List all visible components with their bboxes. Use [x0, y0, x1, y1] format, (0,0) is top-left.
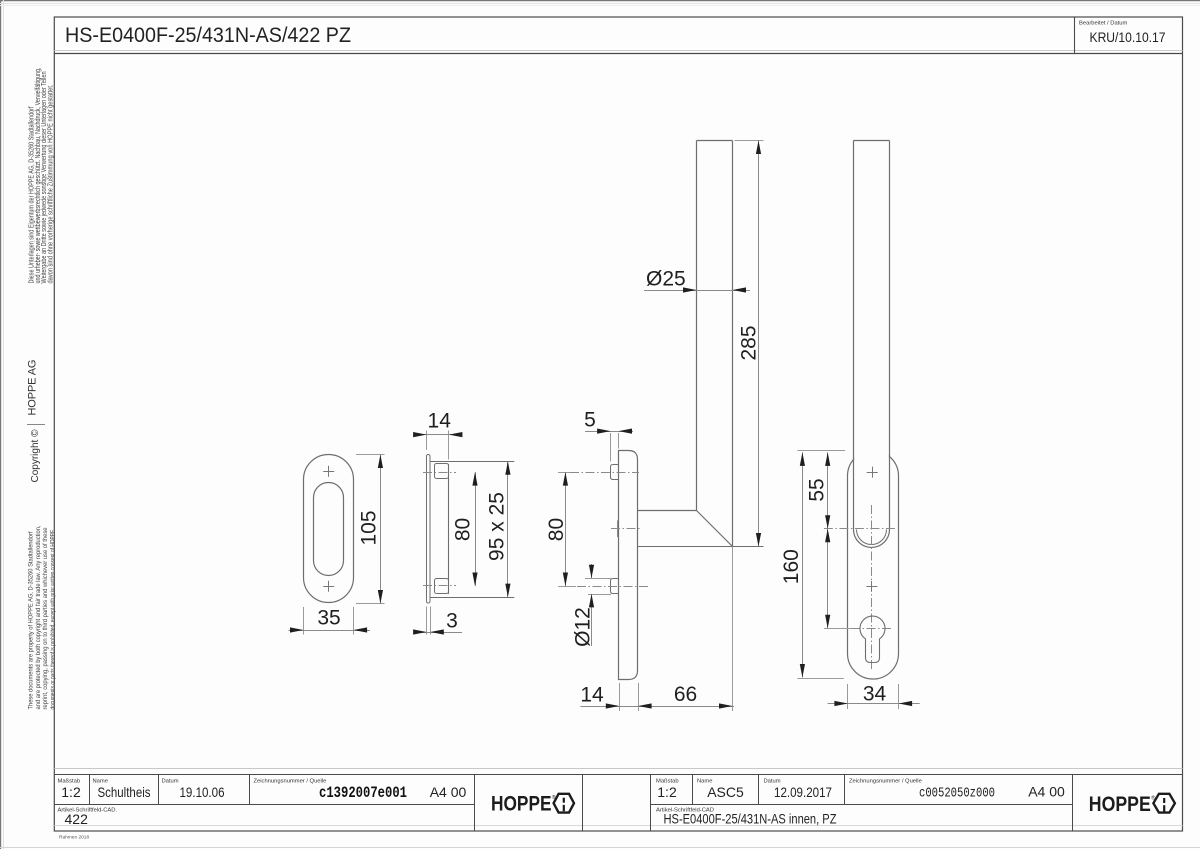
svg-text:3: 3 — [446, 610, 458, 633]
svg-text:14: 14 — [580, 684, 604, 707]
svg-text:ASC5: ASC5 — [707, 784, 744, 800]
svg-text:HOPPE AG: HOPPE AG — [27, 360, 39, 416]
svg-text:1:2: 1:2 — [657, 784, 677, 800]
svg-text:12.09.2017: 12.09.2017 — [774, 784, 832, 800]
svg-text:documents or parts thereof is: documents or parts thereof is prohibited… — [49, 528, 56, 709]
svg-text:95 x 25: 95 x 25 — [486, 492, 509, 561]
svg-text:160: 160 — [780, 549, 803, 584]
svg-text:55: 55 — [806, 478, 829, 501]
svg-text:80: 80 — [452, 518, 475, 541]
svg-text:c1392007e001: c1392007e001 — [319, 784, 407, 802]
svg-text:5: 5 — [584, 409, 596, 432]
svg-text:19.10.06: 19.10.06 — [180, 784, 225, 800]
svg-text:HOPPE: HOPPE — [491, 793, 552, 816]
svg-text:285: 285 — [737, 325, 760, 360]
svg-text:These documents are property o: These documents are property of HOPPE AG… — [28, 531, 35, 709]
svg-text:HOPPE: HOPPE — [1089, 793, 1151, 816]
svg-text:Ø25: Ø25 — [646, 268, 686, 291]
svg-text:and are protected by both copy: and are protected by both copyright and … — [35, 525, 42, 709]
svg-text:14: 14 — [428, 410, 452, 433]
svg-text:c0052050z000: c0052050z000 — [919, 786, 995, 802]
svg-text:Zeichnungsnummer / Quelle: Zeichnungsnummer / Quelle — [254, 779, 327, 785]
svg-text:Zeichnungsnummer / Quelle: Zeichnungsnummer / Quelle — [849, 779, 922, 785]
svg-text:davon sind ohne vorherige schr: davon sind ohne vorherige schriftliche Z… — [47, 84, 54, 283]
svg-text:HS-E0400F-25/431N-AS innen, P: HS-E0400F-25/431N-AS innen, PZ — [664, 811, 837, 827]
svg-text:422: 422 — [65, 811, 89, 827]
svg-text:80: 80 — [545, 518, 568, 541]
svg-text:Datum: Datum — [162, 779, 179, 785]
svg-text:reprint, copying, passing on t: reprint, copying, passing on to third pa… — [42, 527, 49, 709]
svg-text:Rahmen 2018: Rahmen 2018 — [59, 835, 89, 841]
svg-text:A4 00: A4 00 — [430, 784, 467, 800]
svg-text:Schultheis: Schultheis — [98, 784, 151, 800]
svg-text:105: 105 — [358, 510, 381, 545]
svg-text:35: 35 — [317, 607, 340, 630]
svg-text:1:2: 1:2 — [61, 784, 81, 800]
svg-text:66: 66 — [674, 683, 697, 706]
svg-text:A4 00: A4 00 — [1028, 784, 1065, 800]
svg-text:34: 34 — [863, 683, 887, 706]
svg-text:KRU/10.10.17: KRU/10.10.17 — [1090, 29, 1166, 45]
svg-text:HS-E0400F-25/431N-AS/422 PZ: HS-E0400F-25/431N-AS/422 PZ — [65, 24, 351, 47]
svg-text:Ø12: Ø12 — [572, 607, 595, 647]
svg-text:Copyright ©: Copyright © — [30, 429, 41, 483]
svg-text:Bearbeitet / Datum: Bearbeitet / Datum — [1079, 21, 1128, 27]
